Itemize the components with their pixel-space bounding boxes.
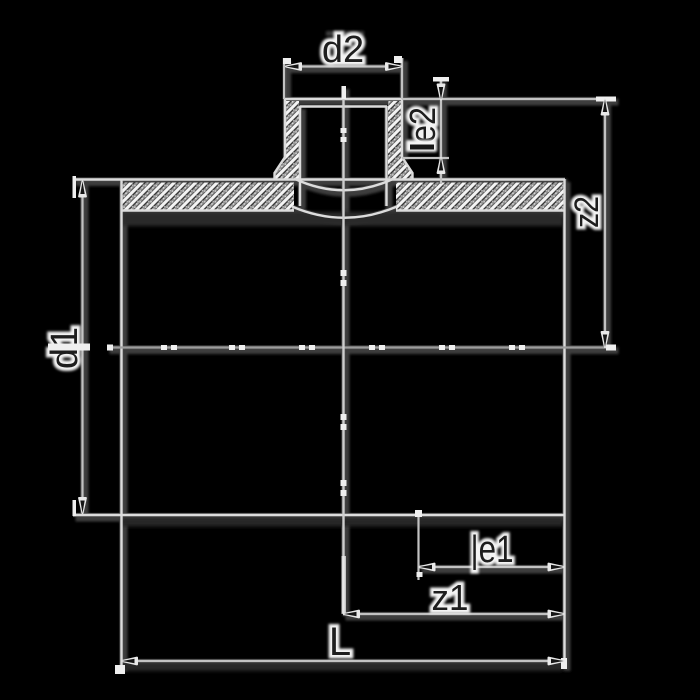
svg-text:|e1: |e1 [471,529,514,571]
svg-text:z1: z1 [432,577,469,618]
svg-text:e2: e2 [402,107,443,143]
svg-text:d2: d2 [322,29,364,71]
svg-text:z2: z2 [568,196,606,228]
svg-text:L: L [329,620,351,664]
